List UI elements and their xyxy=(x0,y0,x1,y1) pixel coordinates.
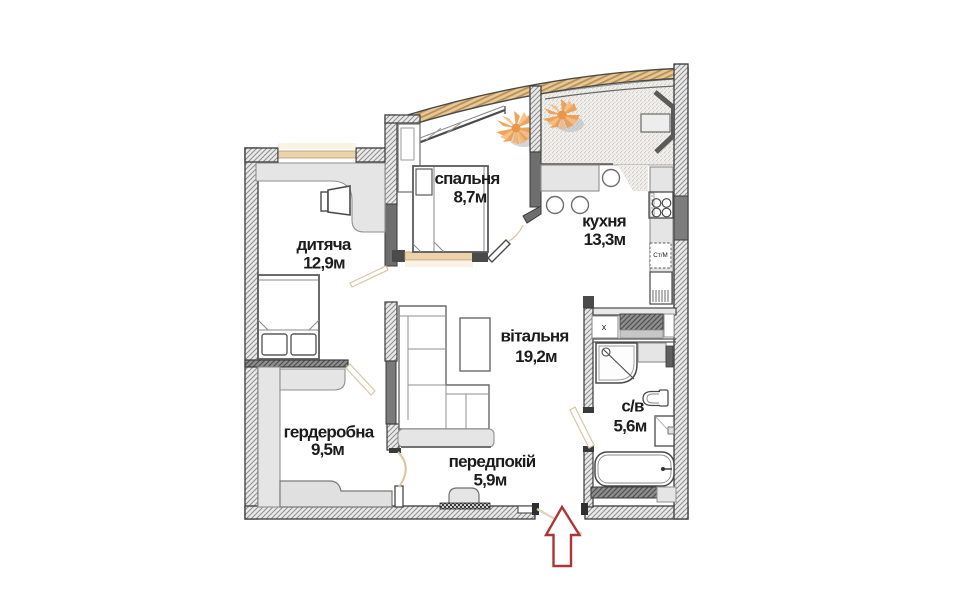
svg-text:с/в: с/в xyxy=(621,397,644,416)
svg-text:9,5м: 9,5м xyxy=(311,440,344,459)
svg-text:вітальня: вітальня xyxy=(501,327,569,346)
svg-text:5,9м: 5,9м xyxy=(473,471,506,490)
svg-text:гердеробна: гердеробна xyxy=(284,423,375,442)
svg-text:х: х xyxy=(602,322,607,332)
svg-text:5,6м: 5,6м xyxy=(613,417,646,436)
svg-text:передпокій: передпокій xyxy=(449,452,536,471)
svg-text:8,7м: 8,7м xyxy=(453,188,486,207)
svg-text:дитяча: дитяча xyxy=(296,235,351,254)
svg-text:Ст/М: Ст/М xyxy=(653,252,667,259)
svg-text:19,2м: 19,2м xyxy=(515,347,557,366)
svg-text:13,3м: 13,3м xyxy=(584,230,626,249)
svg-text:спальня: спальня xyxy=(434,169,499,188)
svg-text:12,9м: 12,9м xyxy=(303,254,345,273)
svg-text:кухня: кухня xyxy=(582,212,626,231)
